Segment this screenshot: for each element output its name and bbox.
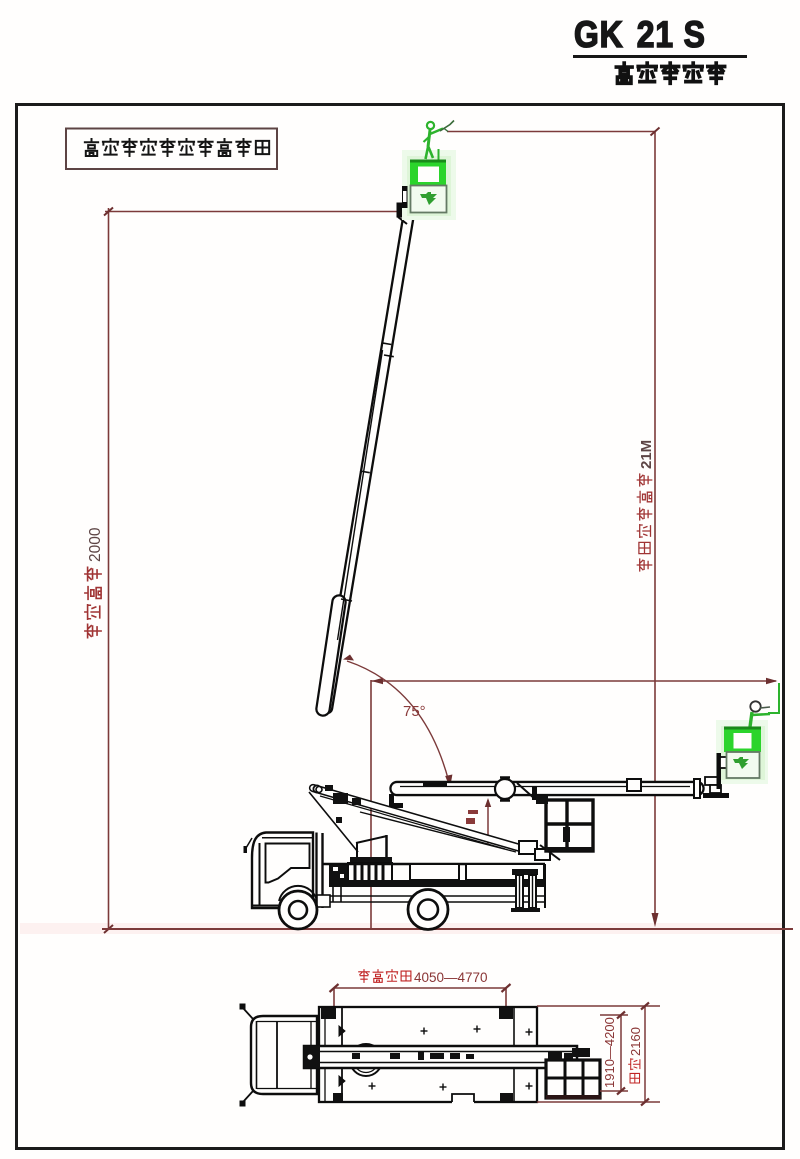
- svg-text:21 S: 21 S: [637, 15, 706, 56]
- svg-text:21M: 21M: [638, 440, 655, 469]
- svg-text:GK: GK: [574, 15, 623, 56]
- svg-text:75°: 75°: [403, 703, 426, 720]
- svg-text:2000: 2000: [87, 527, 104, 562]
- svg-text:4050—4770: 4050—4770: [414, 970, 488, 985]
- svg-text:2160: 2160: [628, 1027, 643, 1056]
- svg-text:1910—4200: 1910—4200: [602, 1017, 617, 1088]
